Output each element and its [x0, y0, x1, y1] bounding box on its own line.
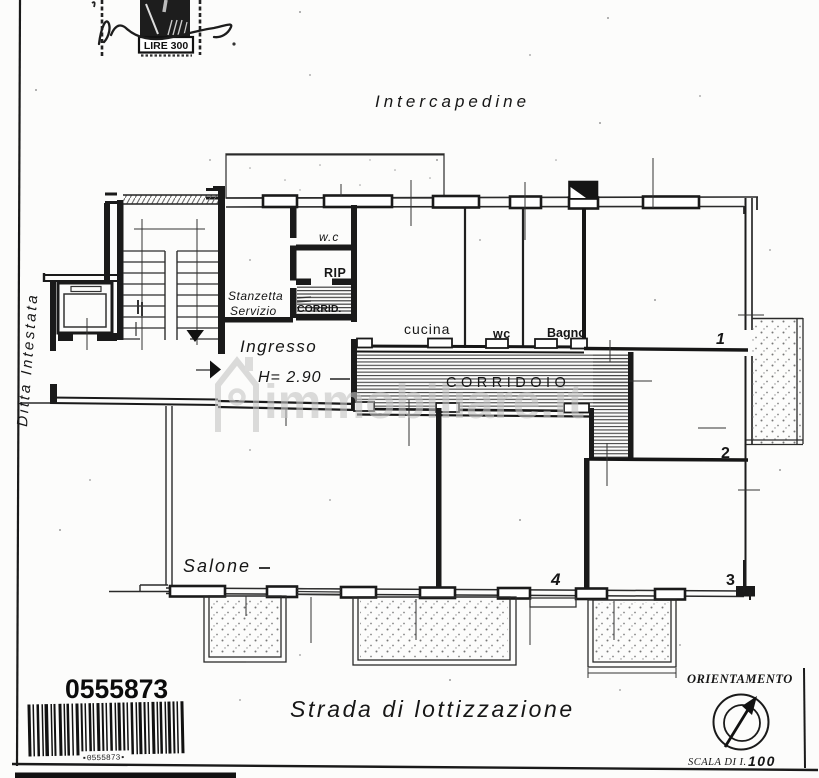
svg-text:Ingresso: Ingresso — [240, 337, 317, 356]
svg-text:RIP: RIP — [324, 266, 346, 280]
svg-text:Intercapedine: Intercapedine — [375, 92, 530, 111]
svg-text:▪0555873▪: ▪0555873▪ — [82, 753, 125, 763]
svg-text:100: 100 — [748, 753, 776, 769]
svg-text:CORRID.: CORRID. — [297, 303, 341, 315]
svg-text:Strada di lottizzazione: Strada di lottizzazione — [290, 696, 575, 722]
svg-text:1: 1 — [716, 331, 725, 348]
svg-text:0555873: 0555873 — [65, 674, 168, 704]
svg-text:Salone: Salone — [183, 556, 251, 576]
svg-text:Servizio: Servizio — [230, 304, 277, 318]
svg-text:4: 4 — [550, 570, 561, 589]
svg-text:Bagno: Bagno — [547, 326, 586, 340]
svg-text:3: 3 — [726, 572, 735, 589]
svg-text:CORRIDOIO: CORRIDOIO — [446, 375, 570, 391]
svg-text:wc: wc — [492, 327, 511, 341]
svg-text:Stanzetta: Stanzetta — [228, 289, 283, 303]
svg-text:H= 2.90: H= 2.90 — [258, 369, 321, 386]
svg-text:2: 2 — [721, 445, 730, 462]
svg-text:w.c: w.c — [319, 230, 339, 244]
svg-text:SCALA DI I.: SCALA DI I. — [688, 757, 747, 768]
svg-text:LIRE 300: LIRE 300 — [144, 40, 189, 52]
svg-text:ORIENTAMENTO: ORIENTAMENTO — [687, 672, 793, 686]
svg-text:cucina: cucina — [404, 321, 450, 337]
